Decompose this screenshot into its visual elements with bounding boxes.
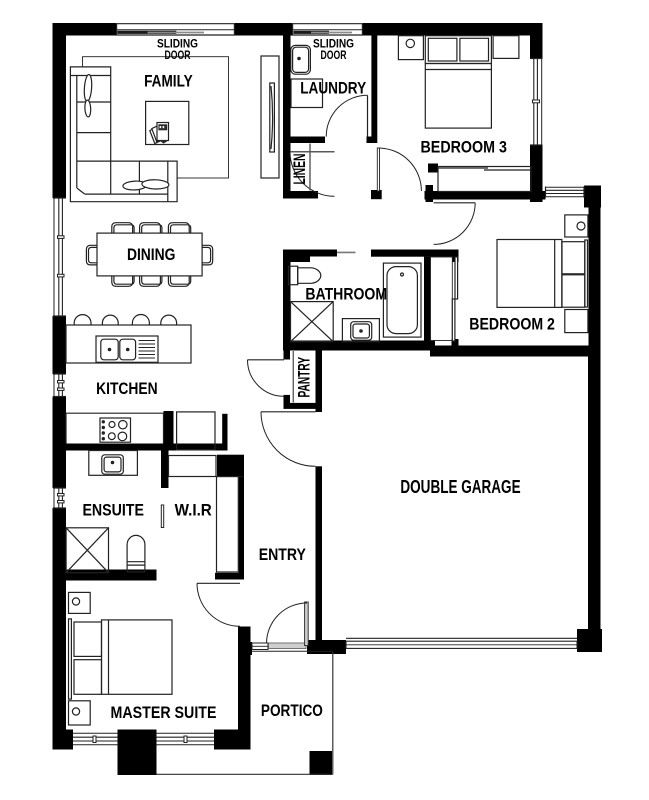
svg-text:DINING: DINING	[127, 246, 176, 264]
svg-text:BATHROOM: BATHROOM	[305, 285, 387, 303]
svg-text:DOOR: DOOR	[321, 48, 347, 62]
svg-text:LAUNDRY: LAUNDRY	[300, 79, 366, 97]
svg-text:ENSUITE: ENSUITE	[82, 501, 144, 519]
svg-text:KITCHEN: KITCHEN	[96, 380, 158, 398]
svg-text:LINEN: LINEN	[291, 154, 309, 185]
svg-text:W.I.R: W.I.R	[175, 501, 212, 519]
svg-text:PANTRY: PANTRY	[295, 357, 313, 398]
svg-text:BEDROOM 3: BEDROOM 3	[421, 138, 507, 156]
svg-text:PORTICO: PORTICO	[261, 702, 323, 720]
svg-text:BEDROOM 2: BEDROOM 2	[469, 316, 555, 334]
svg-text:ENTRY: ENTRY	[259, 546, 306, 564]
svg-text:DOOR: DOOR	[165, 48, 191, 62]
svg-text:MASTER SUITE: MASTER SUITE	[111, 704, 217, 722]
svg-text:FAMILY: FAMILY	[144, 73, 193, 91]
svg-text:DOUBLE GARAGE: DOUBLE GARAGE	[400, 476, 520, 497]
